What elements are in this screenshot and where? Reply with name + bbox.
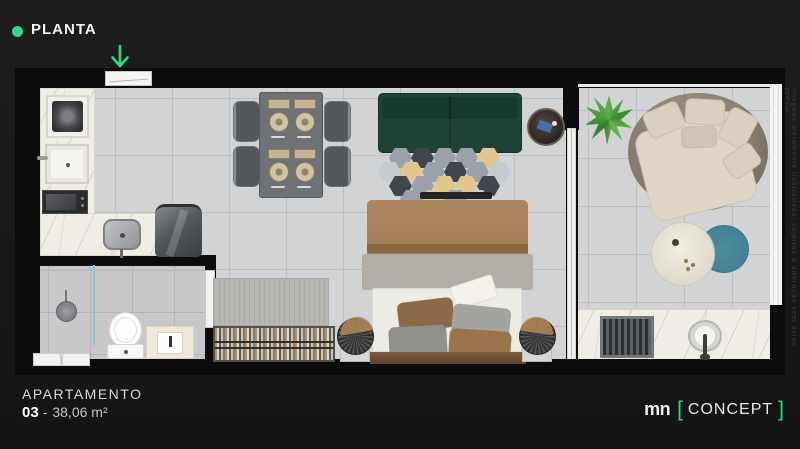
clothes-rail <box>215 347 333 349</box>
placemat <box>294 149 316 159</box>
coffee-table-bowl <box>672 239 679 246</box>
toilet-seat <box>114 317 137 343</box>
plate <box>269 162 289 182</box>
entrance-door-swing <box>109 79 148 83</box>
tv-console <box>420 192 492 199</box>
bathroom-vanity <box>146 326 194 359</box>
balcony-coffee-table <box>651 222 715 286</box>
apartment-area: 38,06 m² <box>52 404 107 420</box>
cutlery <box>297 136 311 138</box>
microwave-oven <box>42 190 88 214</box>
brand-name: CONCEPT <box>688 401 773 419</box>
dining-chair <box>233 101 260 142</box>
placemat <box>268 149 290 159</box>
side-table <box>527 108 565 146</box>
brand-logo: mn [ CONCEPT ] <box>644 399 784 420</box>
microwave-door <box>46 194 76 210</box>
placemat <box>268 99 290 109</box>
entrance-arrow-icon <box>109 44 131 71</box>
place-setting <box>293 99 317 143</box>
balcony-sofa-cushion <box>681 125 718 148</box>
shower-head <box>56 301 77 322</box>
apartment-separator: - <box>43 404 48 420</box>
balcony-divider-wall <box>563 68 579 130</box>
bathroom-faucet <box>169 336 172 347</box>
balcony-wall-sill <box>578 84 782 87</box>
wardrobe-panel <box>213 278 329 326</box>
side-table-decor <box>537 120 553 133</box>
brand-bracket-close: ] <box>778 399 784 420</box>
microwave-knob <box>81 197 84 200</box>
wardrobe-clothes-rack <box>213 326 335 362</box>
dining-chair <box>324 101 351 142</box>
clothes-rail <box>215 341 333 343</box>
kitchen-sink <box>45 144 89 184</box>
refrigerator-highlight <box>166 209 188 257</box>
steel-sink-faucet <box>120 249 123 258</box>
screenshot-root: PLANTA <box>0 0 800 449</box>
coffee-table-item <box>684 259 688 263</box>
apartment-info: 03-38,06 m² <box>22 404 108 421</box>
side-table-cup <box>552 121 557 126</box>
bathroom-window <box>33 353 90 366</box>
plate <box>295 162 315 182</box>
balcony-railing <box>770 86 782 305</box>
planta-bullet-icon <box>12 26 23 37</box>
brand-bracket-open: [ <box>677 399 683 420</box>
dining-chair <box>324 146 351 187</box>
sofa <box>378 93 522 153</box>
entrance-door <box>105 71 152 86</box>
cooktop <box>46 95 89 138</box>
barbecue-faucet-handle <box>700 354 710 360</box>
dining-table <box>259 92 323 198</box>
page-title: PLANTA <box>31 21 97 38</box>
place-setting <box>293 149 317 193</box>
bed-blanket-band <box>367 244 528 253</box>
cutlery <box>271 186 285 188</box>
microwave-knob <box>81 204 84 207</box>
balcony-sliding-glass-door <box>567 128 576 368</box>
apartment-number: 03 <box>22 404 39 421</box>
cutlery <box>271 136 285 138</box>
cutlery <box>297 186 311 188</box>
disclaimer-watermark: Imagens meramente ilustrativas, sujeitas… <box>783 88 797 373</box>
place-setting <box>267 99 291 143</box>
place-setting <box>267 149 291 193</box>
shower-glass-partition <box>93 265 95 345</box>
refrigerator <box>155 204 202 257</box>
brand-mn: mn <box>644 399 670 420</box>
sofa-seat-divider <box>449 122 451 149</box>
plate <box>269 112 289 132</box>
toilet-flush-button <box>124 350 128 354</box>
bed-headboard <box>370 352 526 364</box>
coffee-table-item <box>691 263 695 267</box>
toilet <box>109 312 142 348</box>
bed-throw <box>362 254 533 290</box>
plate <box>295 112 315 132</box>
kitchen-sink-faucet <box>37 156 48 160</box>
barbecue-grill <box>600 316 654 358</box>
toilet-tank <box>107 344 144 359</box>
placemat <box>294 99 316 109</box>
apartment-label: APARTAMENTO <box>22 386 142 402</box>
dining-chair <box>233 146 260 187</box>
kitchen-sink-drain <box>66 163 70 167</box>
barbecue-faucet <box>703 334 707 356</box>
sofa-cushion-divider <box>449 97 451 119</box>
balcony-sofa-cushion <box>684 98 725 126</box>
steel-sink-drain <box>120 233 125 238</box>
cooktop-burner <box>52 101 83 132</box>
steel-sink <box>103 219 141 250</box>
floor-plan <box>15 68 785 375</box>
coffee-table-item <box>686 267 690 271</box>
